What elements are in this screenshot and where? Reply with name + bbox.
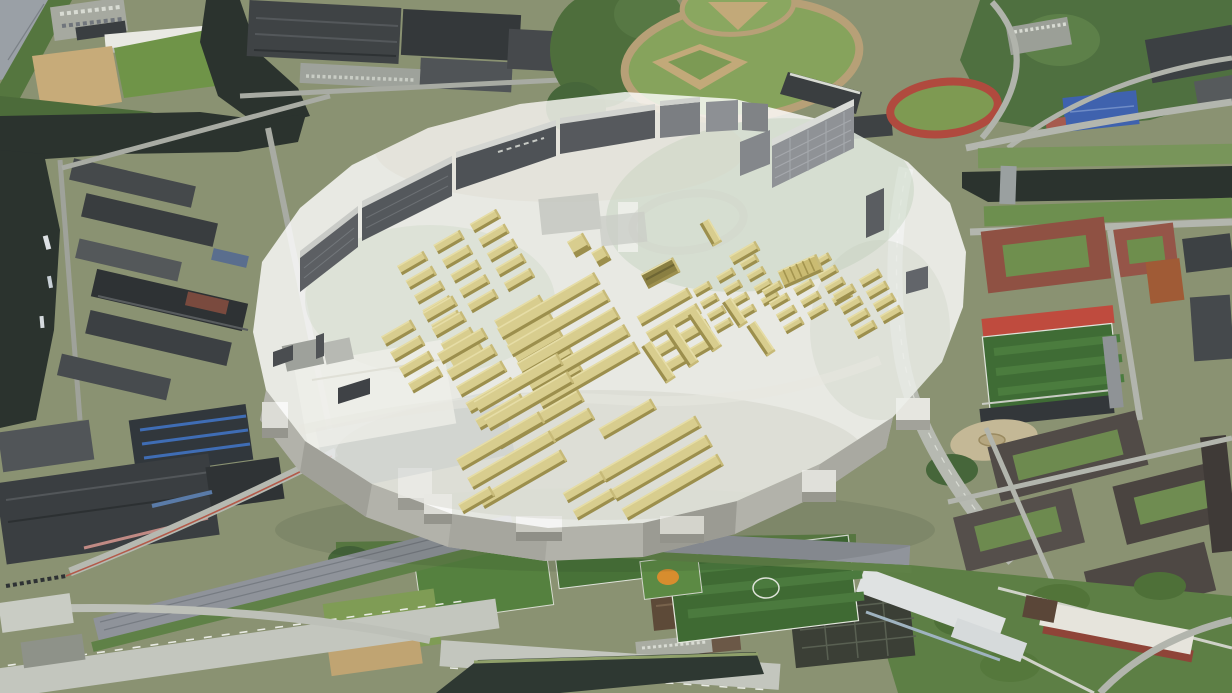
edge-box-side	[802, 492, 836, 502]
edge-box-side	[896, 420, 930, 430]
context-box[interactable]	[538, 193, 601, 235]
factory	[507, 29, 557, 71]
edge-box-side	[262, 428, 288, 438]
factory	[401, 9, 521, 61]
context-box[interactable]	[599, 212, 648, 247]
context-wedge[interactable]	[316, 333, 324, 359]
3d-map-viewport[interactable]	[0, 0, 1232, 693]
scene-svg[interactable]	[0, 0, 1232, 693]
context-box[interactable]	[742, 102, 768, 132]
edge-box-side	[516, 532, 562, 541]
building-orange	[1146, 258, 1185, 304]
courtyard	[1127, 236, 1166, 264]
context-slab[interactable]	[866, 188, 884, 238]
building-dark	[1182, 233, 1232, 273]
tree-mass	[1134, 572, 1186, 600]
edge-box-side	[660, 534, 704, 543]
bridge	[999, 166, 1016, 205]
context-box[interactable]	[706, 100, 738, 132]
building-dark	[1190, 295, 1232, 362]
context-box[interactable]	[660, 102, 700, 138]
edge-box-side	[424, 514, 452, 524]
